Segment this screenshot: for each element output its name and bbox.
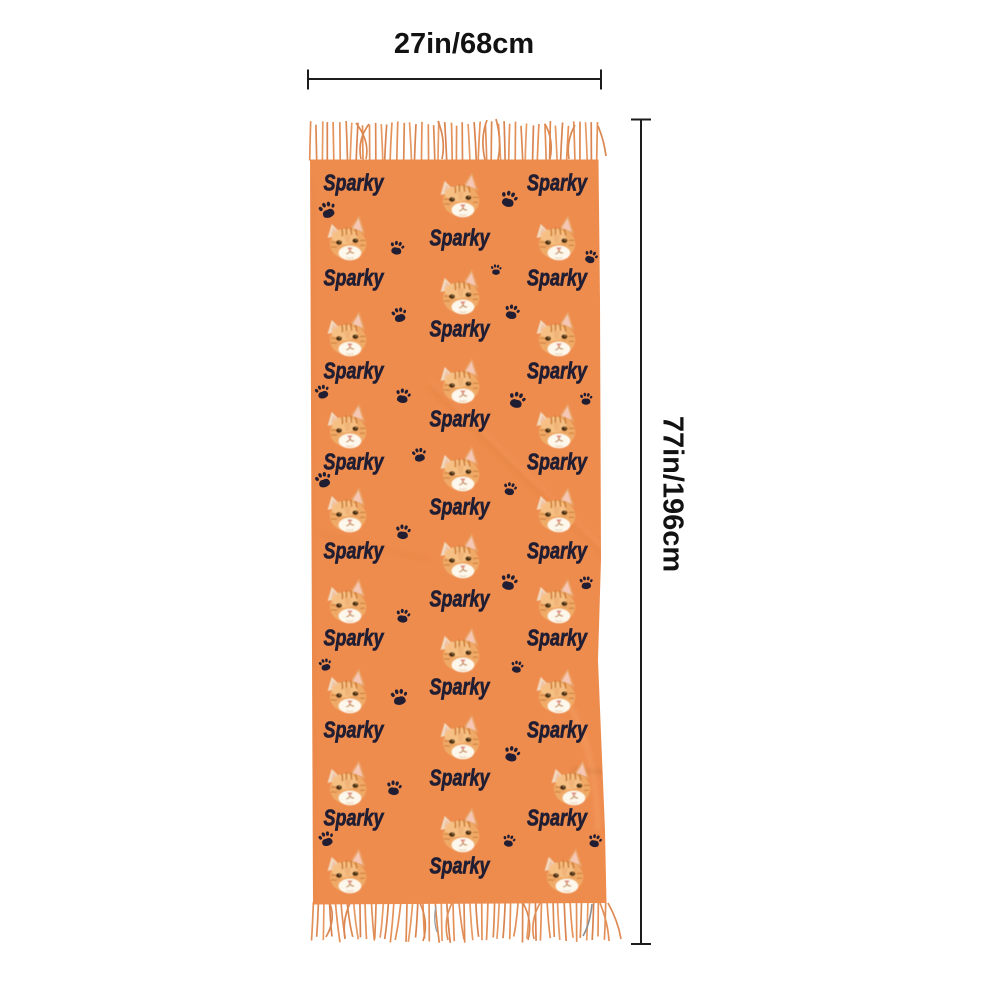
svg-text:Sparky: Sparky [430,852,491,878]
svg-text:Sparky: Sparky [430,405,491,431]
svg-text:Sparky: Sparky [324,357,385,383]
svg-text:Sparky: Sparky [324,804,385,830]
svg-text:Sparky: Sparky [527,804,588,830]
svg-text:Sparky: Sparky [430,493,491,519]
svg-text:Sparky: Sparky [527,716,588,742]
svg-text:Sparky: Sparky [324,537,385,563]
svg-text:Sparky: Sparky [430,224,491,250]
svg-text:Sparky: Sparky [324,624,385,650]
svg-text:27in/68cm: 27in/68cm [394,28,534,60]
svg-text:Sparky: Sparky [527,357,588,383]
svg-text:Sparky: Sparky [430,673,491,699]
svg-text:Sparky: Sparky [324,448,385,474]
svg-text:Sparky: Sparky [324,169,385,195]
svg-text:Sparky: Sparky [527,264,588,290]
svg-text:77in/196cm: 77in/196cm [657,416,689,572]
svg-text:Sparky: Sparky [430,764,491,790]
svg-text:Sparky: Sparky [324,264,385,290]
svg-text:Sparky: Sparky [527,448,588,474]
svg-text:Sparky: Sparky [324,716,385,742]
svg-text:Sparky: Sparky [527,624,588,650]
svg-text:Sparky: Sparky [430,315,491,341]
svg-text:Sparky: Sparky [527,169,588,195]
svg-text:Sparky: Sparky [527,537,588,563]
svg-text:Sparky: Sparky [430,585,491,611]
